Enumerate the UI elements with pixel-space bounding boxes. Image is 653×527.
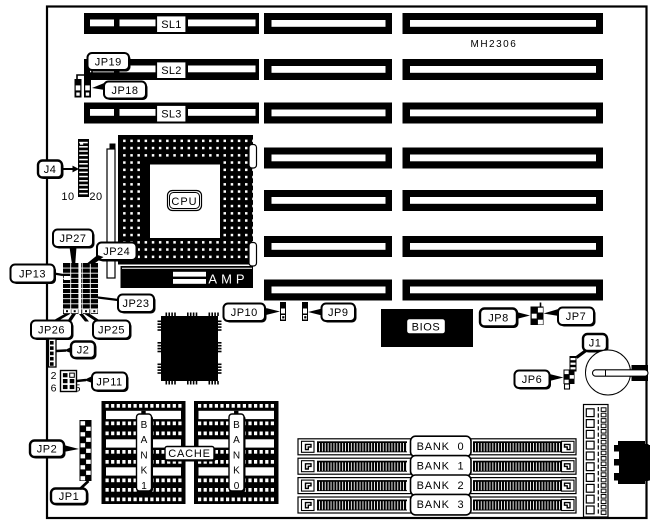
svg-text:AMP: AMP [208,272,248,287]
svg-text:JP27: JP27 [59,233,86,245]
svg-text:A: A [233,435,240,446]
svg-text:10: 10 [61,191,74,203]
svg-text:B: B [141,420,148,431]
svg-text:20: 20 [89,191,102,203]
svg-text:K: K [141,466,148,477]
svg-text:J2: J2 [77,345,90,357]
svg-text:JP23: JP23 [122,298,149,310]
svg-text:SL3: SL3 [161,108,181,120]
svg-text:SL2: SL2 [161,65,181,77]
svg-text:JP10: JP10 [231,307,258,319]
svg-text:JP1: JP1 [59,491,79,503]
svg-text:SL1: SL1 [161,19,181,31]
svg-text:N: N [233,450,240,461]
svg-text:JP7: JP7 [566,311,586,323]
svg-text:JP6: JP6 [522,374,542,386]
svg-text:B: B [233,420,240,431]
svg-text:2: 2 [51,370,57,382]
svg-text:N: N [140,450,147,461]
svg-text:JP25: JP25 [98,324,125,336]
svg-text:JP8: JP8 [488,312,508,324]
svg-text:BANK 3: BANK 3 [417,499,465,511]
svg-text:J1: J1 [589,337,602,349]
svg-text:K: K [233,466,240,477]
svg-text:BIOS: BIOS [412,322,441,334]
svg-text:BANK 1: BANK 1 [417,460,465,472]
svg-text:JP13: JP13 [19,268,46,280]
svg-text:0: 0 [234,481,240,492]
svg-text:JP9: JP9 [328,307,348,319]
svg-text:JP18: JP18 [111,85,138,97]
svg-text:JP26: JP26 [38,324,65,336]
svg-text:J4: J4 [44,164,57,176]
svg-text:1: 1 [141,481,147,492]
svg-text:JP24: JP24 [103,246,130,258]
svg-text:MH2306: MH2306 [471,39,518,50]
svg-text:BANK 0: BANK 0 [417,441,465,453]
svg-text:6: 6 [51,383,57,395]
svg-text:CPU: CPU [171,196,197,208]
svg-text:A: A [141,435,148,446]
svg-text:JP19: JP19 [95,56,122,68]
svg-text:JP11: JP11 [96,376,122,388]
svg-text:BANK 2: BANK 2 [417,480,465,492]
svg-text:CACHE: CACHE [168,448,211,460]
svg-text:JP2: JP2 [37,444,57,456]
